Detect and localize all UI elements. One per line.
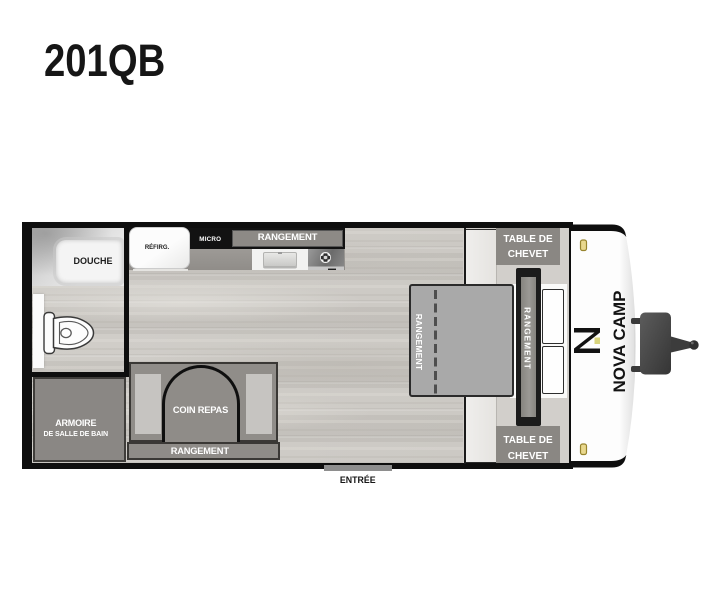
svg-text:NOVA CAMP: NOVA CAMP — [610, 291, 629, 393]
